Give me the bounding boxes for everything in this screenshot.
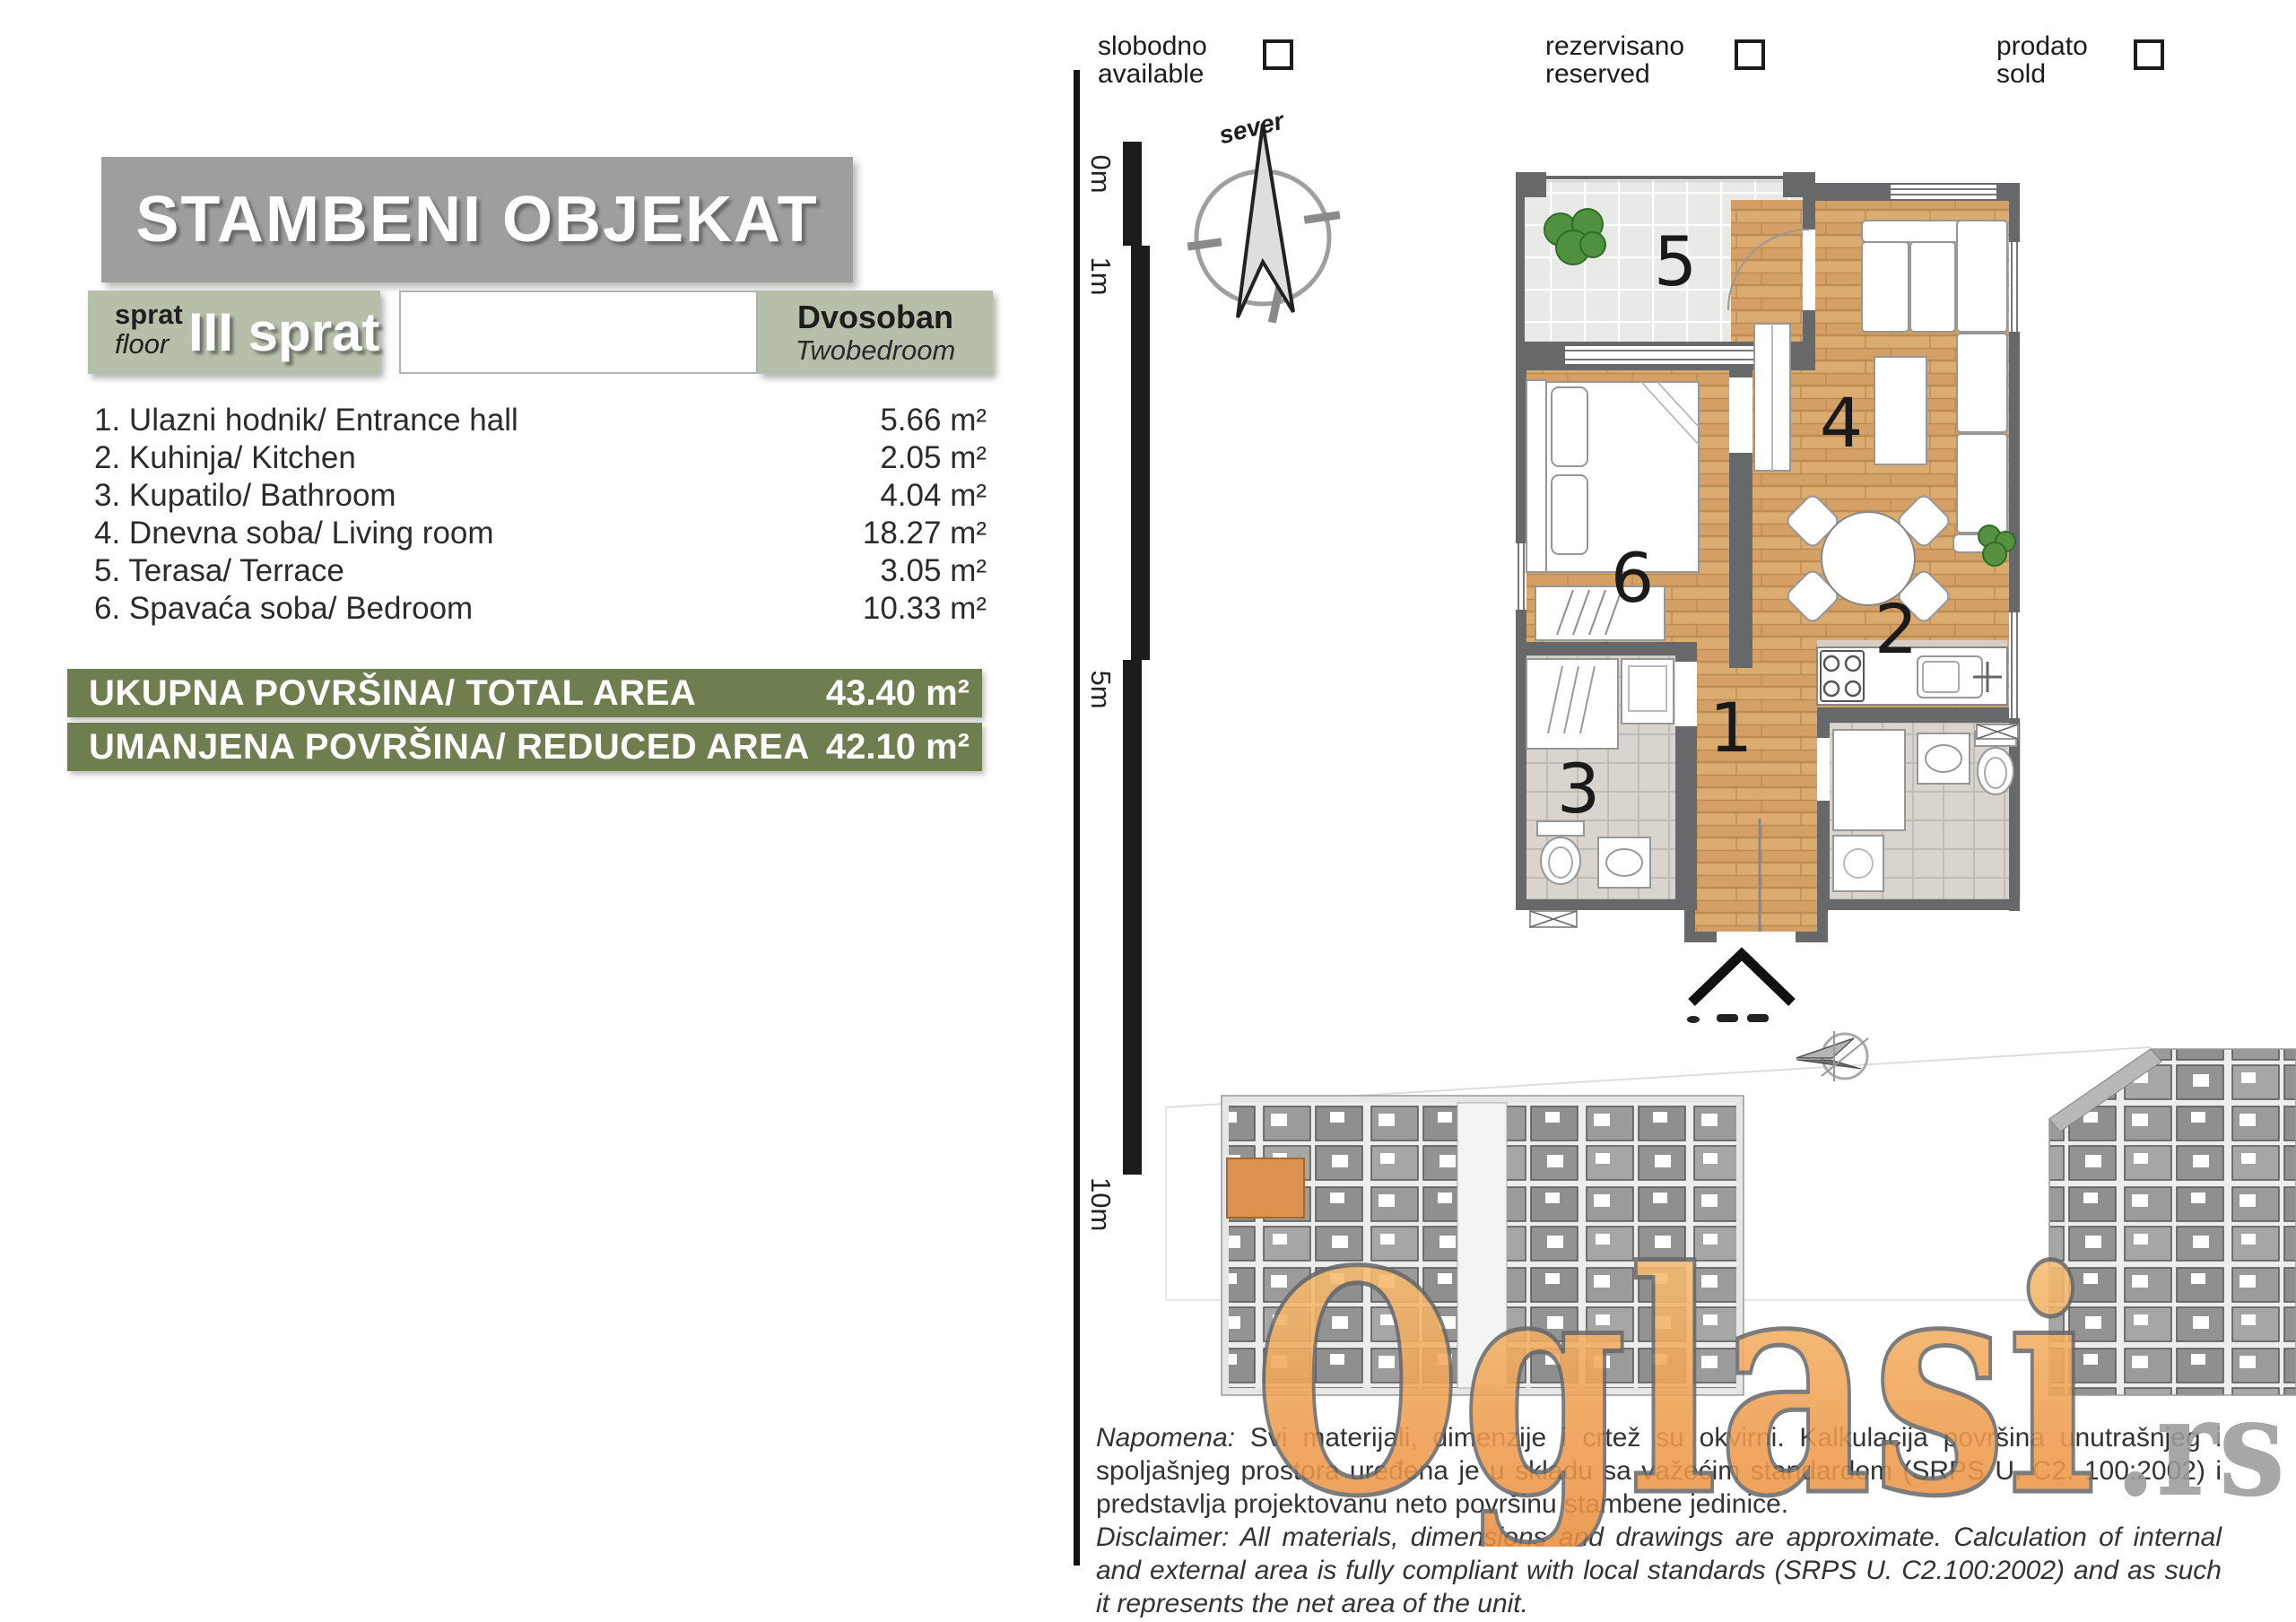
room-label: 1. Ulazni hodnik/ Entrance hall	[94, 403, 518, 438]
legend-sold-en: sold	[1996, 60, 2088, 88]
legend-item-sold: prodato sold	[1996, 32, 2088, 88]
room-area: 18.27 m²	[863, 516, 987, 551]
scale-bar-segment	[1123, 142, 1142, 246]
room-area: 5.66 m²	[880, 403, 987, 438]
legend-reserved-en: reserved	[1545, 60, 1684, 88]
flyer-page: STAMBENI OBJEKAT sprat floor III sprat D…	[0, 0, 2296, 1622]
floor-label-en: floor	[115, 329, 183, 359]
entrance-arrow-icon	[1687, 954, 1792, 1023]
empty-box	[399, 291, 758, 374]
watermark-tld: .rs	[2115, 1366, 2285, 1527]
total-area-bar: UKUPNA POVRŠINA/ TOTAL AREA 43.40 m²	[67, 669, 982, 717]
total-area-label: UKUPNA POVRŠINA/ TOTAL AREA	[67, 673, 696, 714]
watermark: Oglasi .rs	[1247, 1251, 2296, 1547]
unit-type-en: Twobedroom	[796, 335, 956, 366]
legend-sold-sr: prodato	[1996, 32, 2088, 60]
room-number-living: 4	[1820, 383, 1863, 463]
page-title: STAMBENI OBJEKAT	[135, 183, 818, 256]
reduced-area-value: 42.10 m²	[826, 727, 982, 768]
disclaimer-en-lead: Disclaimer:	[1096, 1522, 1229, 1552]
coffee-table	[1874, 357, 1926, 464]
legend-sold-checkbox-icon	[2134, 39, 2164, 70]
room-area: 4.04 m²	[880, 478, 987, 514]
room-area: 2.05 m²	[880, 440, 987, 476]
room-row: 4. Dnevna soba/ Living room 18.27 m²	[94, 515, 987, 552]
room-number-hall: 1	[1709, 688, 1752, 768]
watermark-brand: Oglasi	[1254, 1251, 2097, 1547]
room-area: 3.05 m²	[880, 553, 987, 589]
floor-box: sprat floor III sprat	[88, 291, 380, 374]
site-compass-icon	[1796, 1031, 1868, 1081]
room-row: 5. Terasa/ Terrace 3.05 m²	[94, 552, 987, 590]
floor-plan: 5 4 6 2 1 3	[1516, 160, 2081, 1029]
scale-bar-segment	[1131, 246, 1150, 660]
compass-label: sever	[1216, 108, 1289, 149]
room-number-bathroom: 3	[1557, 749, 1600, 828]
floor-value: III sprat	[188, 301, 379, 363]
room-label: 3. Kupatilo/ Bathroom	[94, 478, 396, 514]
unit-type-box: Dvosoban Twobedroom	[758, 291, 993, 374]
unit-type-sr: Dvosoban	[797, 299, 953, 335]
disclaimer-sr-lead: Napomena:	[1096, 1423, 1235, 1453]
legend-available-checkbox-icon	[1263, 39, 1293, 70]
room-row: 6. Spavaća soba/ Bedroom 10.33 m²	[94, 590, 987, 628]
compass-north-icon: sever	[1184, 108, 1345, 332]
highlighted-unit	[1227, 1158, 1304, 1218]
room-label: 6. Spavaća soba/ Bedroom	[94, 591, 473, 627]
room-label: 2. Kuhinja/ Kitchen	[94, 440, 356, 476]
scale-label-10m: 10m	[1088, 1177, 1117, 1231]
room-row: 1. Ulazni hodnik/ Entrance hall 5.66 m²	[94, 402, 987, 439]
legend-item-reserved: rezervisano reserved	[1545, 32, 1684, 88]
scale-label-5m: 5m	[1088, 663, 1117, 716]
legend-available-sr: slobodno	[1098, 32, 1207, 60]
cabinet	[1754, 324, 1790, 471]
room-label: 4. Dnevna soba/ Living room	[94, 516, 494, 551]
room-area: 10.33 m²	[863, 591, 987, 627]
reduced-area-bar: UMANJENA POVRŠINA/ REDUCED AREA 42.10 m²	[67, 723, 982, 771]
legend-available-en: available	[1098, 60, 1207, 88]
room-list: 1. Ulazni hodnik/ Entrance hall 5.66 m² …	[94, 402, 987, 628]
room-row: 3. Kupatilo/ Bathroom 4.04 m²	[94, 477, 987, 515]
floor-labels: sprat floor	[115, 299, 183, 359]
legend-item-available: slobodno available	[1098, 32, 1207, 88]
scale-bar-segment	[1123, 660, 1142, 1175]
room-number-kitchen: 2	[1874, 589, 1918, 669]
room-number-terrace: 5	[1654, 221, 1697, 301]
room-label: 5. Terasa/ Terrace	[94, 553, 344, 589]
room-row: 2. Kuhinja/ Kitchen 2.05 m²	[94, 439, 987, 477]
legend-reserved-sr: rezervisano	[1545, 32, 1684, 60]
scale-label-1m: 1m	[1088, 249, 1117, 303]
legend-reserved-checkbox-icon	[1735, 39, 1765, 70]
vertical-divider	[1074, 70, 1080, 1566]
total-area-value: 43.40 m²	[826, 673, 982, 714]
scale-label-0m: 0m	[1088, 147, 1117, 201]
floor-label-sr: sprat	[115, 299, 183, 329]
page-title-box: STAMBENI OBJEKAT	[101, 157, 853, 282]
room-number-bedroom: 6	[1611, 538, 1654, 618]
reduced-area-label: UMANJENA POVRŠINA/ REDUCED AREA	[67, 727, 810, 768]
